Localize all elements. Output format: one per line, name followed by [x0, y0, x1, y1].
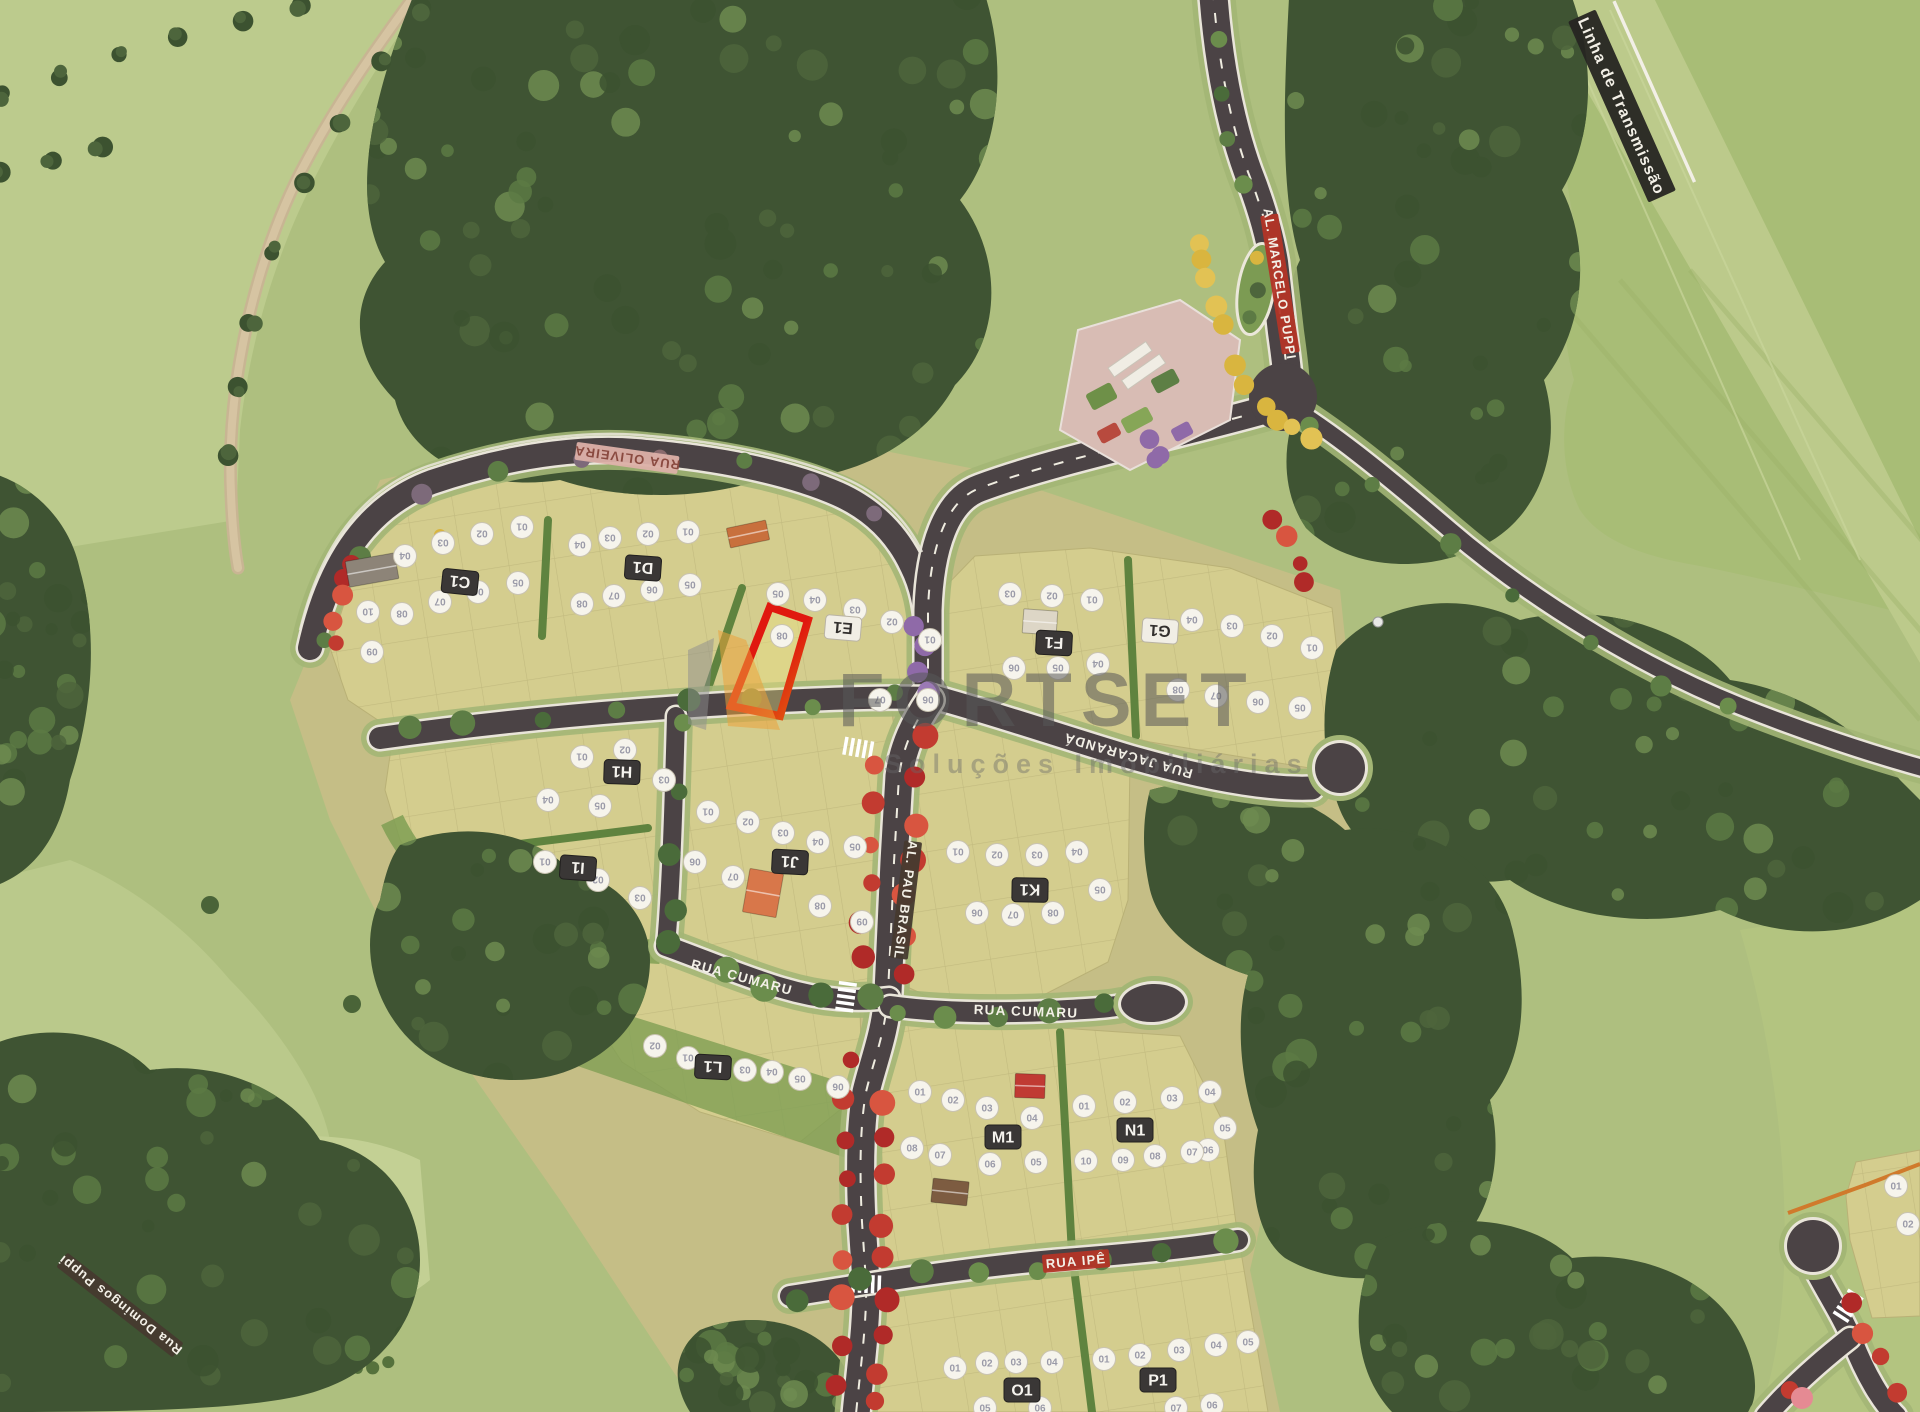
svg-text:03: 03 [739, 1064, 751, 1075]
svg-text:E1: E1 [833, 618, 854, 637]
svg-text:04: 04 [1210, 1341, 1222, 1352]
svg-text:07: 07 [727, 871, 739, 882]
lot-marker: 01 [677, 521, 700, 544]
lot-marker: 08 [571, 593, 594, 616]
lot-marker: 05 [1025, 1151, 1048, 1174]
svg-text:01: 01 [1078, 1102, 1090, 1113]
lot-marker: 07 [429, 591, 452, 614]
lot-marker: 09 [851, 911, 874, 934]
svg-text:04: 04 [1186, 614, 1198, 625]
lot-marker: 01 [947, 841, 970, 864]
lot-marker: 08 [1144, 1145, 1167, 1168]
svg-text:01: 01 [702, 806, 714, 817]
svg-text:02: 02 [476, 528, 488, 539]
svg-text:07: 07 [608, 590, 620, 601]
svg-text:06: 06 [984, 1160, 996, 1171]
svg-text:01: 01 [1086, 594, 1098, 605]
lot-marker: 09 [1112, 1149, 1135, 1172]
lot-marker: 02 [644, 1035, 667, 1058]
svg-text:02: 02 [947, 1096, 959, 1107]
svg-text:05: 05 [1219, 1124, 1231, 1135]
lot-marker: 07 [1002, 904, 1025, 927]
svg-text:02: 02 [1266, 630, 1278, 641]
svg-text:01: 01 [1306, 642, 1318, 653]
svg-text:05: 05 [1242, 1338, 1254, 1349]
svg-text:03: 03 [658, 774, 670, 785]
lot-marker: 02 [1129, 1344, 1152, 1367]
svg-text:04: 04 [1026, 1114, 1038, 1125]
svg-text:05: 05 [849, 841, 861, 852]
lot-marker: 02 [637, 523, 660, 546]
svg-text:M1: M1 [992, 1130, 1014, 1147]
svg-text:03: 03 [1004, 588, 1016, 599]
svg-text:07: 07 [434, 596, 446, 607]
svg-text:03: 03 [1166, 1094, 1178, 1105]
svg-text:07: 07 [934, 1151, 946, 1162]
lot-marker: 01 [1093, 1348, 1116, 1371]
lot-marker: 08 [391, 603, 414, 626]
svg-text:02: 02 [981, 1359, 993, 1370]
svg-text:03: 03 [1173, 1346, 1185, 1357]
block-label: P1 [1140, 1368, 1176, 1392]
lot-marker: 01 [944, 1357, 967, 1380]
model-building [1015, 1073, 1046, 1098]
lot-marker: 08 [809, 895, 832, 918]
svg-text:05: 05 [979, 1404, 991, 1412]
svg-text:02: 02 [1046, 590, 1058, 601]
lot-marker: 01 [1885, 1175, 1908, 1198]
svg-text:08: 08 [1149, 1152, 1161, 1163]
lot-marker: 01 [534, 851, 557, 874]
svg-text:03: 03 [981, 1104, 993, 1115]
lot-marker: 03 [999, 583, 1022, 606]
svg-text:04: 04 [399, 550, 411, 561]
svg-text:J1: J1 [781, 852, 800, 870]
lot-marker: 10 [357, 601, 380, 624]
lot-marker: 03 [734, 1059, 757, 1082]
svg-text:06: 06 [1202, 1146, 1214, 1157]
svg-text:02: 02 [742, 816, 754, 827]
svg-text:05: 05 [1030, 1158, 1042, 1169]
lot-marker: 02 [986, 844, 1009, 867]
lot-marker: 04 [807, 831, 830, 854]
svg-text:04: 04 [542, 794, 554, 805]
lot-marker: 06 [979, 1153, 1002, 1176]
lot-marker: 03 [976, 1097, 999, 1120]
lot-marker: 06 [827, 1076, 850, 1099]
svg-text:02: 02 [1902, 1220, 1914, 1231]
svg-text:05: 05 [1094, 884, 1106, 895]
block-label: F1 [1035, 630, 1072, 656]
lot-marker: 08 [771, 625, 794, 648]
block-label: I1 [559, 855, 597, 881]
block-label: M1 [985, 1125, 1021, 1149]
lot-marker: 07 [603, 585, 626, 608]
lot-marker: 03 [1005, 1351, 1028, 1374]
lot-marker: 03 [1168, 1339, 1191, 1362]
lot-marker: 04 [761, 1061, 784, 1084]
lot-marker: 04 [1021, 1107, 1044, 1130]
svg-text:F1: F1 [1044, 633, 1064, 651]
lot-marker: 08 [1042, 902, 1065, 925]
svg-text:04: 04 [766, 1066, 778, 1077]
svg-text:N1: N1 [1125, 1123, 1146, 1140]
svg-text:01: 01 [682, 1052, 694, 1063]
block-label: D1 [624, 555, 662, 581]
lot-marker: 07 [722, 866, 745, 889]
site-model-photo: 0102030405060708091001020304050607080102… [0, 0, 1920, 1412]
svg-text:06: 06 [832, 1081, 844, 1092]
lot-marker: 01 [1081, 589, 1104, 612]
lot-marker: 04 [394, 545, 417, 568]
lot-marker: 04 [1066, 841, 1089, 864]
lot-marker: 04 [804, 589, 827, 612]
lot-marker: 02 [471, 523, 494, 546]
lot-marker: 05 [1237, 1331, 1260, 1354]
svg-text:G1: G1 [1149, 621, 1172, 639]
watermark-brand: FORTSET [838, 658, 1256, 743]
lot-marker: 01 [571, 746, 594, 769]
svg-text:10: 10 [362, 606, 374, 617]
svg-text:L1: L1 [703, 1057, 723, 1075]
svg-text:02: 02 [642, 528, 654, 539]
svg-text:05: 05 [772, 588, 784, 599]
svg-text:03: 03 [777, 827, 789, 838]
svg-text:06: 06 [1034, 1404, 1046, 1412]
lot-marker: 05 [1089, 879, 1112, 902]
lot-marker: 06 [966, 902, 989, 925]
svg-text:H1: H1 [611, 762, 632, 780]
lot-marker: 06 [1201, 1394, 1224, 1412]
lot-marker: 08 [901, 1137, 924, 1160]
svg-text:02: 02 [1134, 1351, 1146, 1362]
lot-marker: 04 [1181, 609, 1204, 632]
svg-text:K1: K1 [1020, 880, 1041, 897]
svg-text:06: 06 [689, 856, 701, 867]
block-label: G1 [1141, 618, 1179, 644]
lot-marker: 01 [511, 516, 534, 539]
block-label: N1 [1117, 1118, 1153, 1142]
svg-text:06: 06 [971, 907, 983, 918]
lot-marker: 02 [1897, 1213, 1920, 1236]
block-label: E1 [824, 614, 862, 641]
svg-text:06: 06 [1206, 1401, 1218, 1412]
lot-marker: 05 [789, 1068, 812, 1091]
lot-marker: 04 [569, 534, 592, 557]
svg-text:02: 02 [649, 1040, 661, 1051]
svg-text:05: 05 [1294, 702, 1306, 713]
svg-text:08: 08 [1047, 907, 1059, 918]
svg-text:08: 08 [576, 598, 588, 609]
svg-text:01: 01 [539, 856, 551, 867]
lot-marker: 03 [1161, 1087, 1184, 1110]
svg-text:09: 09 [1117, 1156, 1129, 1167]
lot-marker: 01 [1073, 1095, 1096, 1118]
svg-text:01: 01 [1098, 1355, 1110, 1366]
lot-marker: 03 [1221, 615, 1244, 638]
lot-marker: 03 [772, 822, 795, 845]
svg-text:P1: P1 [1148, 1373, 1168, 1390]
lot-marker: 01 [919, 629, 942, 652]
svg-text:01: 01 [516, 521, 528, 532]
lot-marker: 03 [599, 527, 622, 550]
svg-text:10: 10 [1080, 1157, 1092, 1168]
lot-marker: 02 [1261, 625, 1284, 648]
svg-text:03: 03 [1226, 620, 1238, 631]
block-label: O1 [1004, 1378, 1040, 1402]
svg-text:I1: I1 [571, 858, 586, 876]
svg-text:04: 04 [1046, 1358, 1058, 1369]
svg-text:02: 02 [886, 616, 898, 627]
svg-text:09: 09 [856, 916, 868, 927]
svg-text:04: 04 [574, 539, 586, 550]
block-label: J1 [771, 849, 808, 875]
svg-text:05: 05 [684, 579, 696, 590]
lot-marker: 02 [1114, 1091, 1137, 1114]
svg-text:07: 07 [1170, 1404, 1182, 1412]
lot-marker: 02 [976, 1352, 999, 1375]
svg-text:04: 04 [1071, 846, 1083, 857]
lot-marker: 04 [537, 789, 560, 812]
lot-marker: 02 [1041, 585, 1064, 608]
lot-marker: 03 [653, 769, 676, 792]
lot-marker: 05 [1214, 1117, 1237, 1140]
lot-marker: 06 [641, 579, 664, 602]
lot-marker: 01 [1301, 637, 1324, 660]
lot-marker: 04 [1199, 1081, 1222, 1104]
svg-text:01: 01 [576, 751, 588, 762]
svg-text:05: 05 [512, 577, 524, 588]
block-label: C1 [441, 568, 479, 596]
svg-text:03: 03 [1010, 1358, 1022, 1369]
lot-marker: 05 [767, 583, 790, 606]
lot-marker: 05 [844, 836, 867, 859]
block-label: L1 [694, 1054, 731, 1080]
svg-text:01: 01 [949, 1364, 961, 1375]
svg-text:08: 08 [814, 900, 826, 911]
lot-marker: 05 [1289, 697, 1312, 720]
svg-text:08: 08 [396, 608, 408, 619]
watermark-tagline: Soluções Imobiliárias [884, 749, 1309, 779]
svg-text:05: 05 [794, 1073, 806, 1084]
lot-marker: 04 [1041, 1351, 1064, 1374]
lot-marker: 07 [1181, 1141, 1204, 1164]
model-building [742, 868, 783, 917]
lot-marker: 05 [679, 574, 702, 597]
svg-text:09: 09 [366, 646, 378, 657]
svg-text:04: 04 [1204, 1088, 1216, 1099]
svg-text:03: 03 [437, 537, 449, 548]
lot-marker: 01 [909, 1081, 932, 1104]
svg-text:C1: C1 [449, 571, 471, 590]
svg-text:08: 08 [906, 1144, 918, 1155]
lot-marker: 02 [737, 811, 760, 834]
lot-marker: 06 [684, 851, 707, 874]
lot-marker: 03 [629, 887, 652, 910]
block-label: H1 [604, 759, 641, 784]
svg-text:01: 01 [682, 526, 694, 537]
svg-text:02: 02 [991, 849, 1003, 860]
svg-text:01: 01 [952, 846, 964, 857]
lot-marker: 02 [614, 739, 637, 762]
lot-marker: 03 [432, 532, 455, 555]
svg-text:02: 02 [1119, 1098, 1131, 1109]
svg-text:03: 03 [1031, 849, 1043, 860]
lot-marker: 05 [507, 572, 530, 595]
svg-text:02: 02 [619, 744, 631, 755]
lot-marker: 04 [1205, 1334, 1228, 1357]
svg-text:03: 03 [634, 892, 646, 903]
lot-marker: 02 [881, 611, 904, 634]
svg-text:01: 01 [914, 1088, 926, 1099]
lot-marker: 10 [1075, 1150, 1098, 1173]
svg-text:01: 01 [924, 634, 936, 645]
lot-marker: 07 [929, 1144, 952, 1167]
model-building [931, 1178, 969, 1206]
svg-text:07: 07 [1186, 1148, 1198, 1159]
svg-text:06: 06 [646, 584, 658, 595]
svg-text:05: 05 [594, 800, 606, 811]
block-label: K1 [1012, 878, 1048, 903]
svg-text:03: 03 [849, 604, 861, 615]
svg-text:03: 03 [604, 532, 616, 543]
lot-marker: 03 [1026, 844, 1049, 867]
svg-text:O1: O1 [1011, 1383, 1032, 1400]
svg-text:07: 07 [1007, 909, 1019, 920]
svg-text:01: 01 [1890, 1182, 1902, 1193]
lot-marker: 05 [589, 795, 612, 818]
svg-text:04: 04 [809, 594, 821, 605]
masterplan-model: 0102030405060708091001020304050607080102… [0, 0, 1920, 1412]
lot-marker: 09 [361, 641, 384, 664]
svg-text:D1: D1 [632, 558, 654, 576]
svg-text:04: 04 [812, 836, 824, 847]
lot-marker: 02 [942, 1089, 965, 1112]
lot-marker: 01 [697, 801, 720, 824]
svg-text:08: 08 [776, 630, 788, 641]
